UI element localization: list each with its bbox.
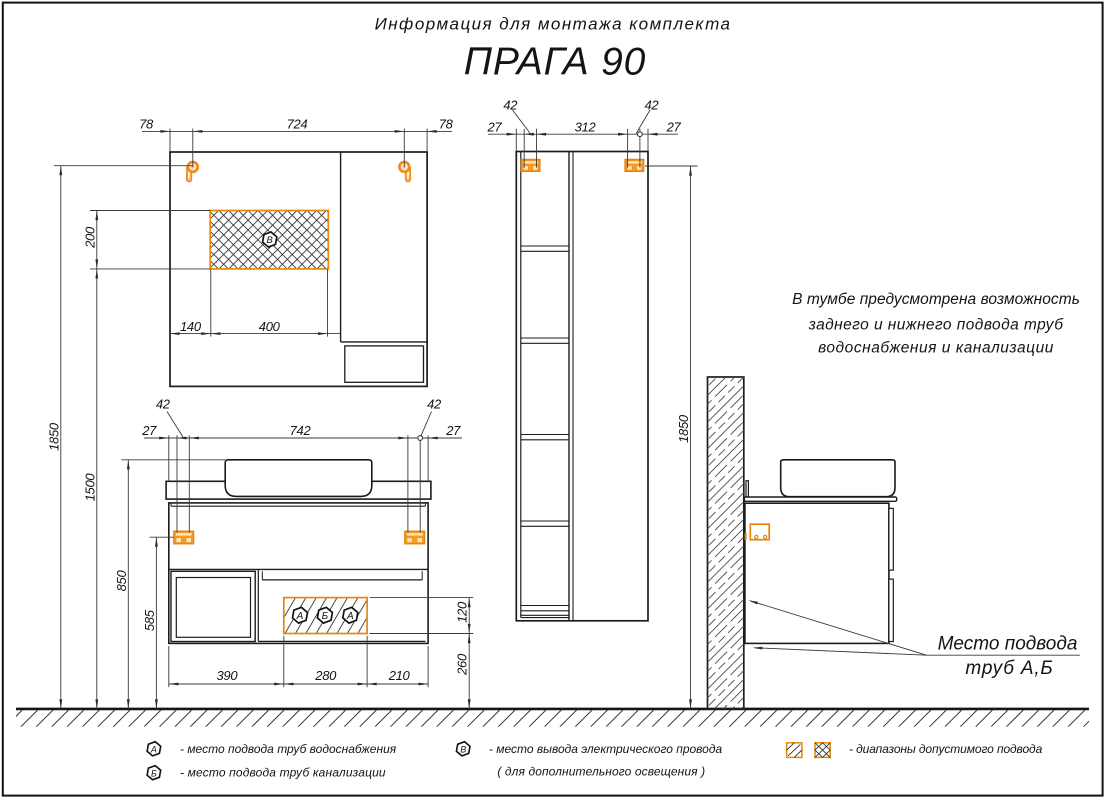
svg-text:труб А,Б: труб А,Б xyxy=(965,658,1053,679)
svg-text:1500: 1500 xyxy=(82,473,97,502)
svg-text:Б: Б xyxy=(322,611,329,622)
svg-text:78: 78 xyxy=(439,117,454,132)
svg-text:Место подвода: Место подвода xyxy=(938,634,1078,655)
svg-text:1850: 1850 xyxy=(676,414,691,443)
svg-text:200: 200 xyxy=(82,226,97,249)
svg-text:- место вывода электрического: - место вывода электрического провода xyxy=(489,742,723,756)
svg-text:312: 312 xyxy=(575,119,597,134)
svg-text:- диапазоны допустимого подво: - диапазоны допустимого подвода xyxy=(849,742,1043,756)
svg-text:27: 27 xyxy=(445,423,461,438)
svg-text:В тумбе предусмотрена возможно: В тумбе предусмотрена возможность xyxy=(792,291,1080,308)
svg-text:42: 42 xyxy=(644,98,659,113)
svg-text:210: 210 xyxy=(388,668,411,683)
svg-text:- место подвода труб водоснаб: - место подвода труб водоснабжения xyxy=(180,742,397,756)
svg-text:А: А xyxy=(346,611,354,622)
svg-text:- место подвода труб канализа: - место подвода труб канализации xyxy=(180,766,386,780)
svg-text:водоснабжения и канализации: водоснабжения и канализации xyxy=(818,340,1054,357)
svg-text:В: В xyxy=(460,744,466,754)
svg-text:724: 724 xyxy=(287,117,308,132)
svg-text:400: 400 xyxy=(259,319,281,334)
svg-text:А: А xyxy=(150,744,157,754)
svg-text:42: 42 xyxy=(503,98,518,113)
svg-text:140: 140 xyxy=(180,319,202,334)
svg-text:42: 42 xyxy=(427,397,442,412)
svg-text:Информация для монтажа комп: Информация для монтажа комплекта xyxy=(375,14,732,33)
svg-text:заднего и нижнего подвода труб: заднего и нижнего подвода труб xyxy=(808,317,1065,334)
svg-text:27: 27 xyxy=(666,119,682,134)
svg-text:ПРАГА 90: ПРАГА 90 xyxy=(464,41,646,84)
svg-text:42: 42 xyxy=(156,397,171,412)
svg-text:В: В xyxy=(267,235,274,246)
svg-text:280: 280 xyxy=(314,668,337,683)
svg-text:260: 260 xyxy=(455,653,470,676)
svg-text:120: 120 xyxy=(455,601,470,623)
svg-text:742: 742 xyxy=(290,423,312,438)
svg-text:27: 27 xyxy=(486,119,502,134)
svg-text:( для дополнительного освещени: ( для дополнительного освещения ) xyxy=(497,765,705,779)
svg-text:78: 78 xyxy=(139,117,154,132)
svg-text:27: 27 xyxy=(141,423,157,438)
svg-text:1850: 1850 xyxy=(46,422,61,451)
svg-text:390: 390 xyxy=(217,668,239,683)
svg-text:850: 850 xyxy=(114,570,129,592)
svg-text:А: А xyxy=(296,611,304,622)
svg-text:585: 585 xyxy=(142,609,157,631)
svg-text:Б: Б xyxy=(151,768,157,778)
